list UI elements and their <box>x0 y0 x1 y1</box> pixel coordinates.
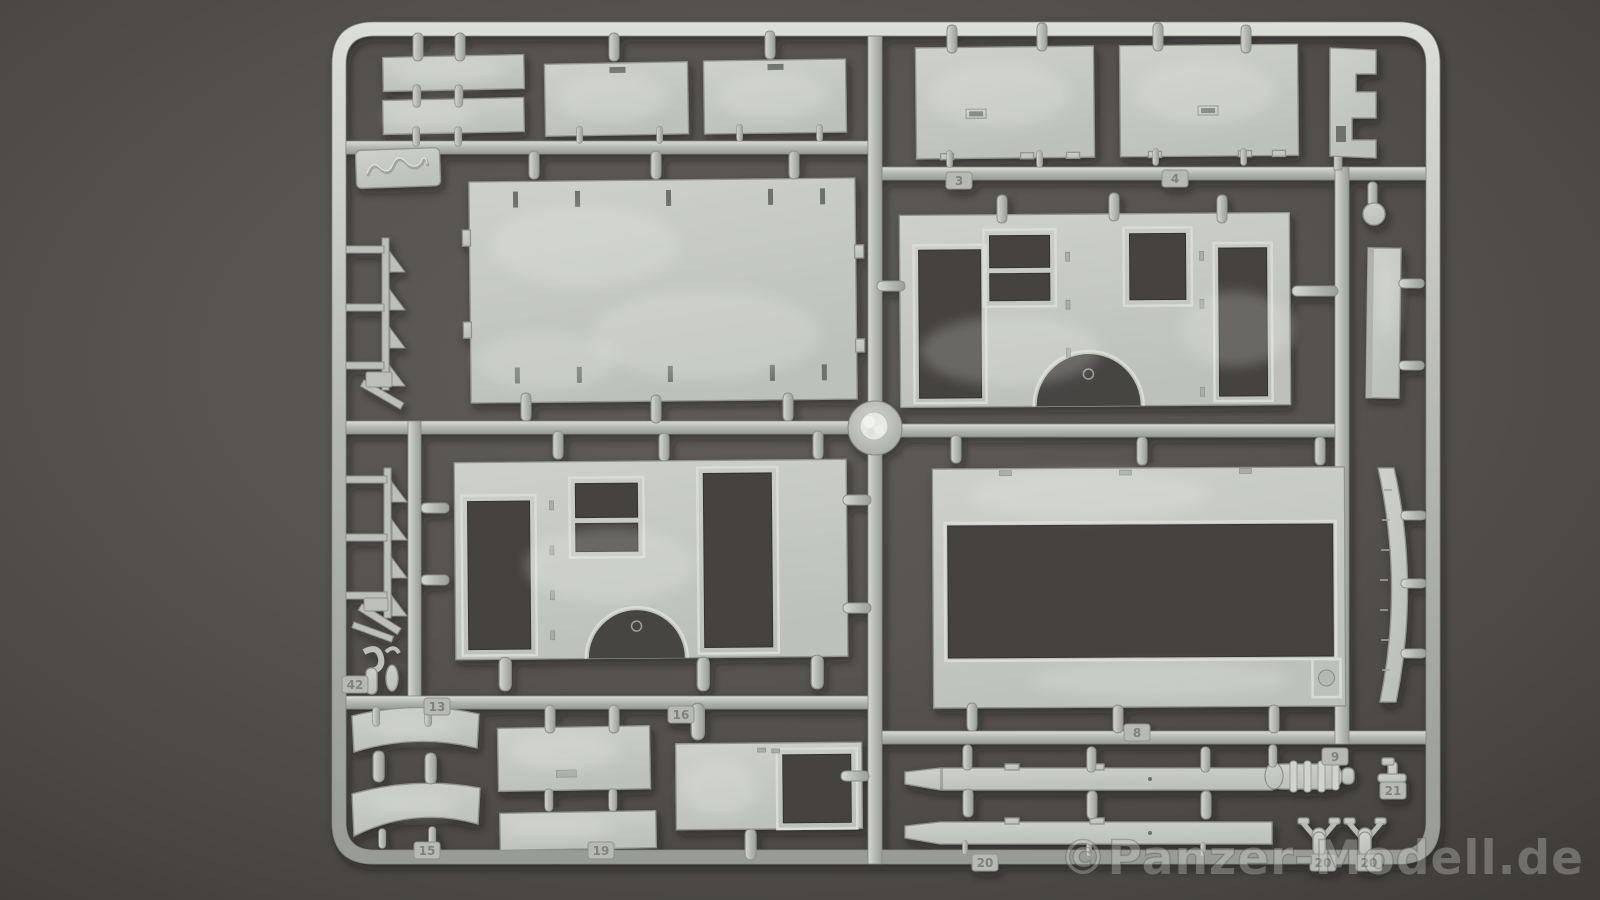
watermark-text: ©Panzer-Modell.de <box>1060 831 1584 886</box>
sprue-photo: 3489421316151920202021 ©Panzer-Modell.de <box>0 0 1600 900</box>
photo-stage: 3489421316151920202021 ©Panzer-Modell.de <box>0 0 1600 900</box>
